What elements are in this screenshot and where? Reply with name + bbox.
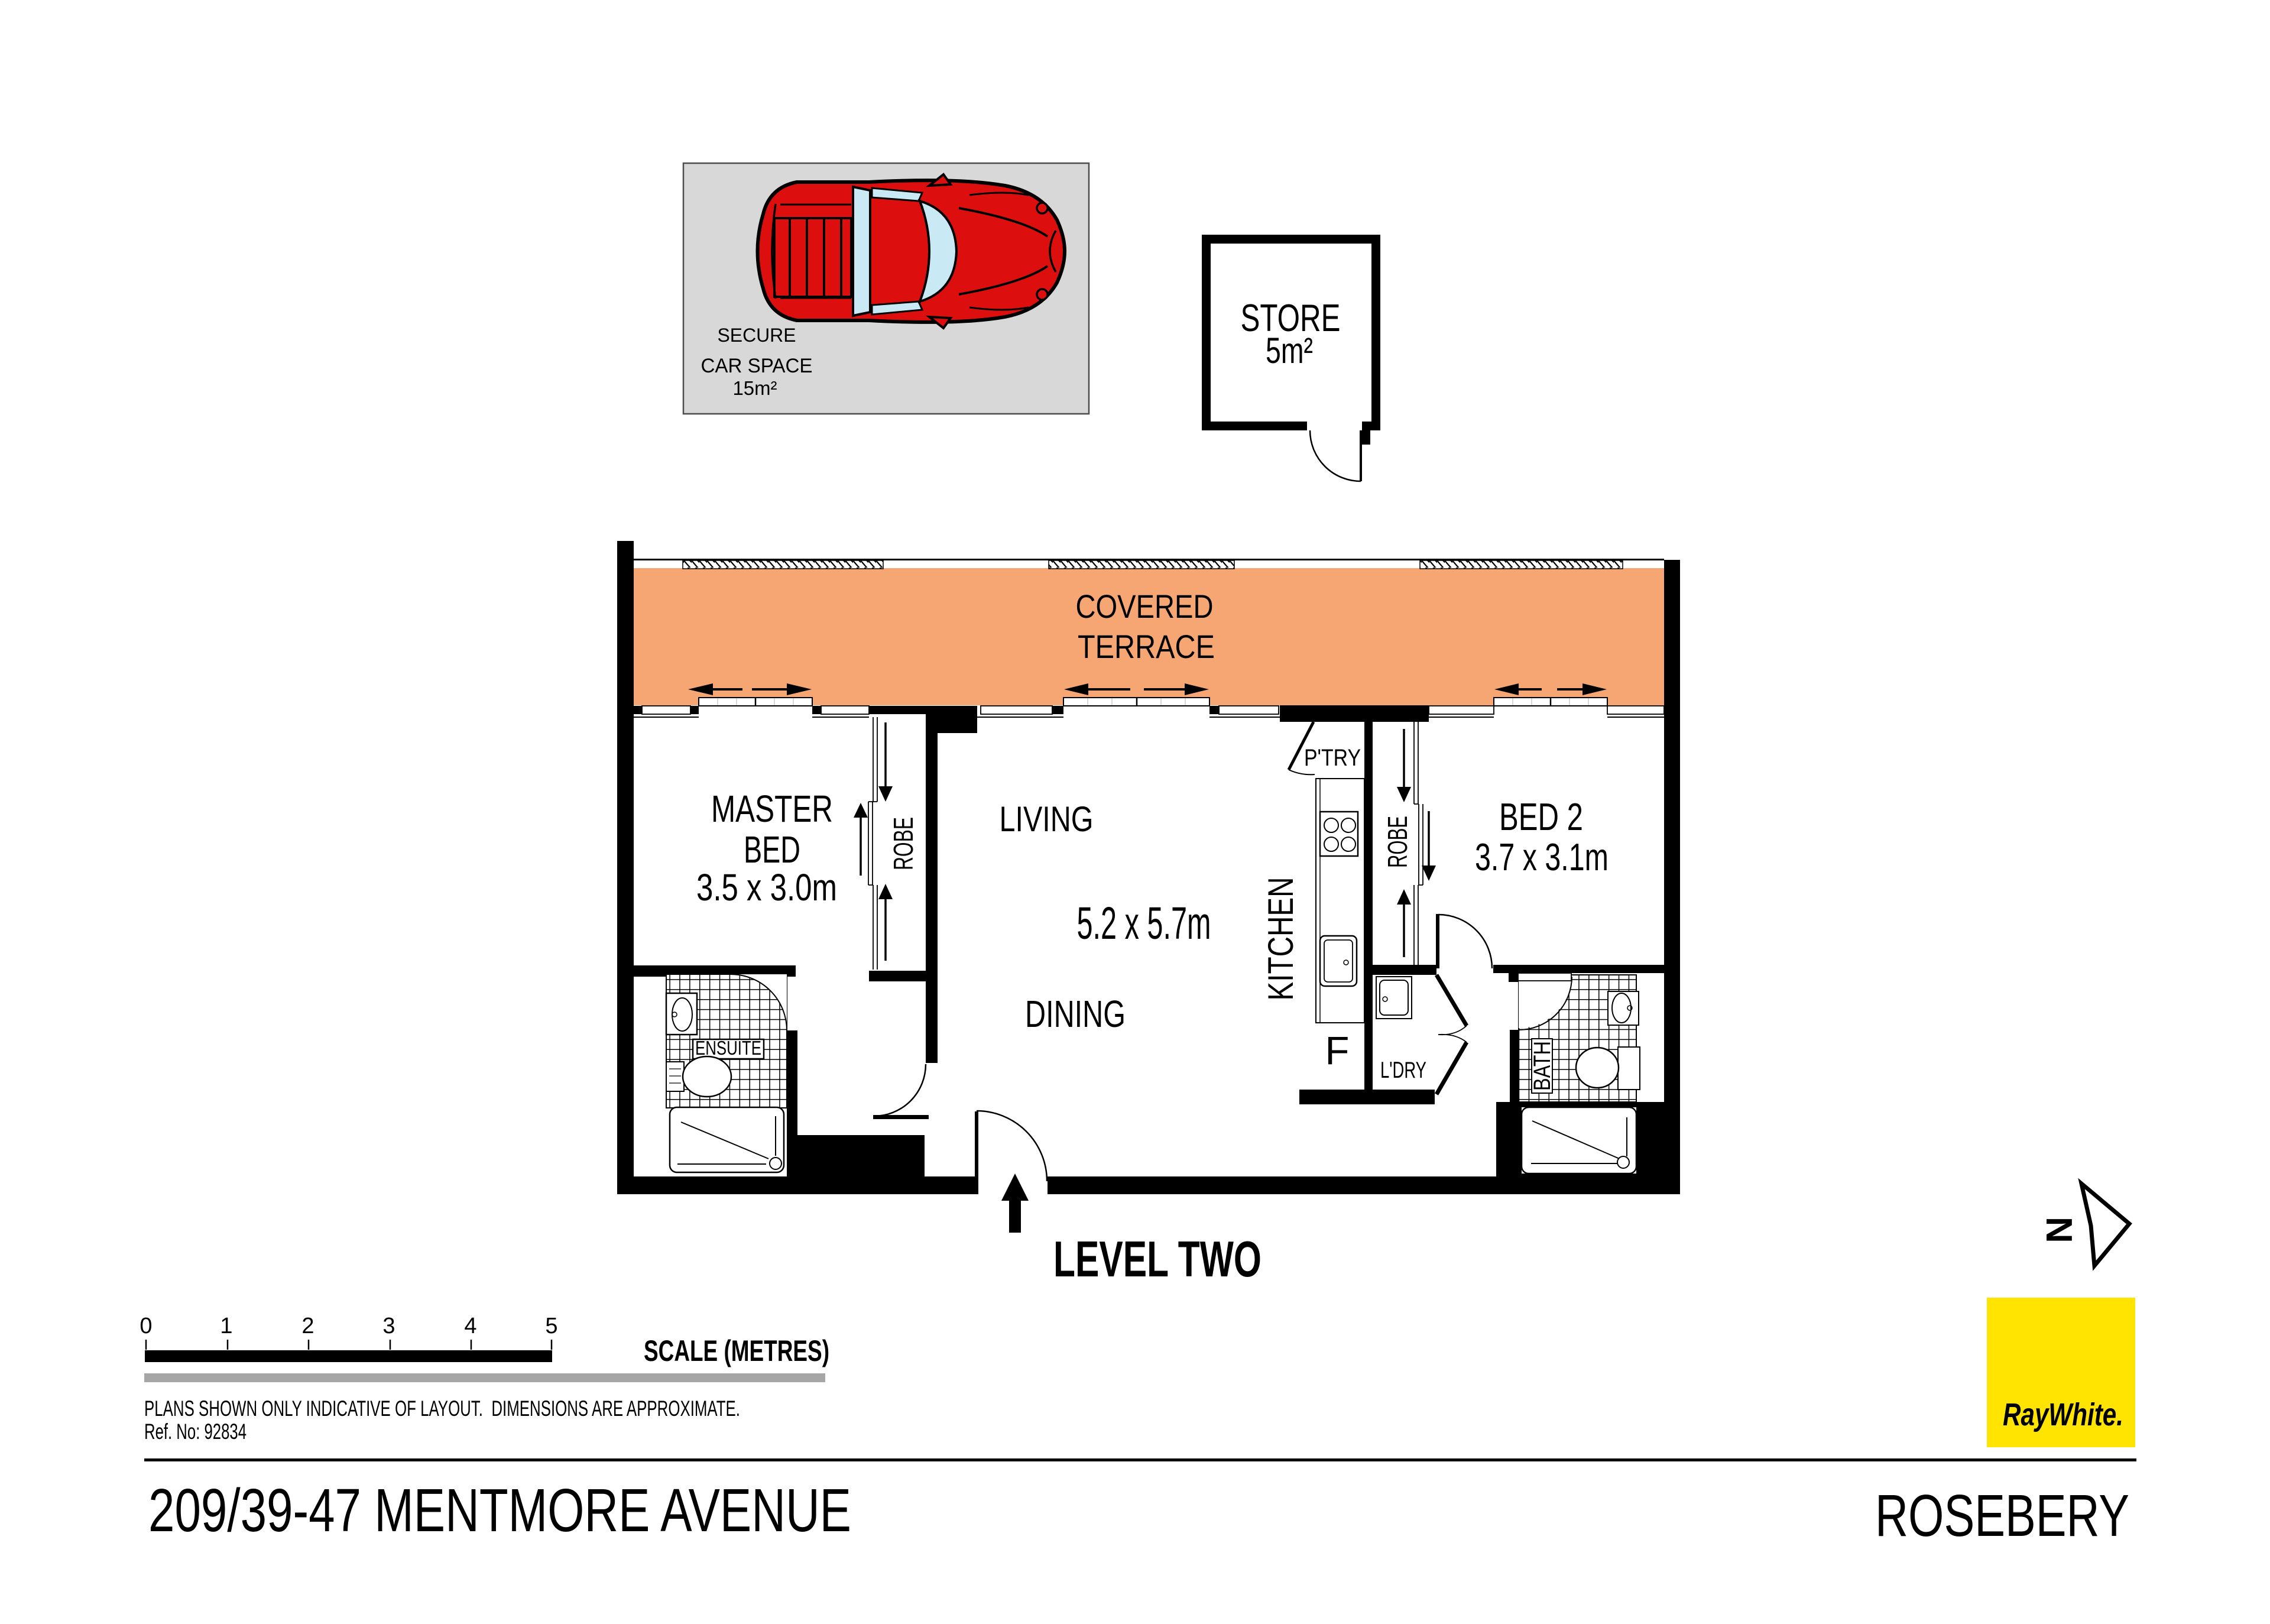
svg-text:5: 5: [545, 1314, 557, 1338]
svg-text:ROSEBERY: ROSEBERY: [1875, 1483, 2129, 1549]
svg-text:SECURE: SECURE: [718, 325, 796, 346]
svg-text:COVERED: COVERED: [1076, 588, 1214, 625]
svg-text:0: 0: [140, 1314, 152, 1338]
svg-text:L'DRY: L'DRY: [1380, 1058, 1426, 1083]
svg-text:3: 3: [382, 1314, 395, 1338]
svg-text:BATH: BATH: [1529, 1041, 1555, 1091]
svg-text:LEVEL TWO: LEVEL TWO: [1053, 1231, 1262, 1288]
svg-text:5m²: 5m²: [1266, 330, 1313, 371]
svg-text:2: 2: [301, 1314, 314, 1338]
svg-text:1: 1: [220, 1314, 232, 1338]
svg-text:KITCHEN: KITCHEN: [1261, 877, 1301, 1001]
svg-text:5.2 x 5.7m: 5.2 x 5.7m: [1077, 898, 1211, 949]
svg-text:209/39-47 MENTMORE AVENUE: 209/39-47 MENTMORE AVENUE: [148, 1476, 851, 1544]
svg-text:DINING: DINING: [1025, 993, 1126, 1035]
svg-text:3.5 x 3.0m: 3.5 x 3.0m: [696, 866, 837, 909]
svg-text:BED 2: BED 2: [1499, 795, 1583, 838]
svg-text:F: F: [1325, 1029, 1350, 1073]
svg-text:ROBE: ROBE: [1382, 816, 1413, 868]
svg-text:BED: BED: [744, 828, 800, 871]
svg-text:SCALE (METRES): SCALE (METRES): [644, 1334, 829, 1367]
svg-text:N: N: [2038, 1217, 2079, 1243]
svg-text:PLANS SHOWN ONLY INDICATIVE OF: PLANS SHOWN ONLY INDICATIVE OF LAYOUT. D…: [144, 1396, 740, 1421]
svg-text:3.7 x 3.1m: 3.7 x 3.1m: [1475, 835, 1609, 879]
svg-text:RayWhite.: RayWhite.: [2003, 1397, 2123, 1432]
svg-text:LIVING: LIVING: [1000, 799, 1094, 839]
svg-text:MASTER: MASTER: [711, 787, 833, 830]
svg-text:CAR SPACE: CAR SPACE: [701, 355, 813, 377]
svg-text:TERRACE: TERRACE: [1078, 628, 1215, 665]
svg-text:15m²: 15m²: [733, 377, 777, 399]
svg-text:P'TRY: P'TRY: [1304, 745, 1361, 771]
svg-text:Ref. No: 92834: Ref. No: 92834: [144, 1419, 247, 1444]
svg-text:ROBE: ROBE: [888, 817, 919, 870]
svg-text:ENSUITE: ENSUITE: [695, 1037, 761, 1059]
svg-text:4: 4: [464, 1314, 476, 1338]
